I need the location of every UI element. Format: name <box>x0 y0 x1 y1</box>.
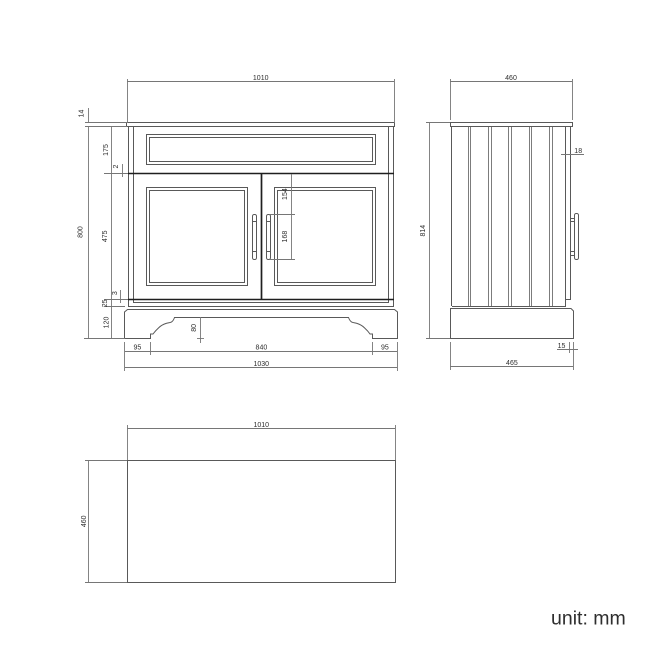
svg-text:15: 15 <box>558 343 566 350</box>
svg-text:25: 25 <box>102 299 109 307</box>
svg-text:800: 800 <box>77 226 84 238</box>
svg-text:14: 14 <box>79 110 86 118</box>
svg-text:168: 168 <box>282 231 289 243</box>
svg-text:2: 2 <box>113 165 120 169</box>
svg-text:465: 465 <box>506 360 518 367</box>
svg-text:460: 460 <box>505 75 517 82</box>
svg-text:unit: mm: unit: mm <box>551 608 626 630</box>
svg-text:460: 460 <box>81 515 88 527</box>
svg-text:1030: 1030 <box>254 361 270 368</box>
svg-text:120: 120 <box>104 317 111 329</box>
svg-text:18: 18 <box>574 148 582 155</box>
svg-text:95: 95 <box>134 345 142 352</box>
svg-text:3: 3 <box>112 291 119 295</box>
svg-text:154: 154 <box>282 188 289 200</box>
svg-text:814: 814 <box>420 225 427 237</box>
svg-text:95: 95 <box>381 345 389 352</box>
svg-text:1010: 1010 <box>253 75 269 82</box>
svg-text:475: 475 <box>102 230 109 242</box>
svg-text:175: 175 <box>103 144 110 156</box>
svg-text:80: 80 <box>191 324 198 332</box>
svg-text:840: 840 <box>256 345 268 352</box>
svg-text:1010: 1010 <box>254 422 270 429</box>
